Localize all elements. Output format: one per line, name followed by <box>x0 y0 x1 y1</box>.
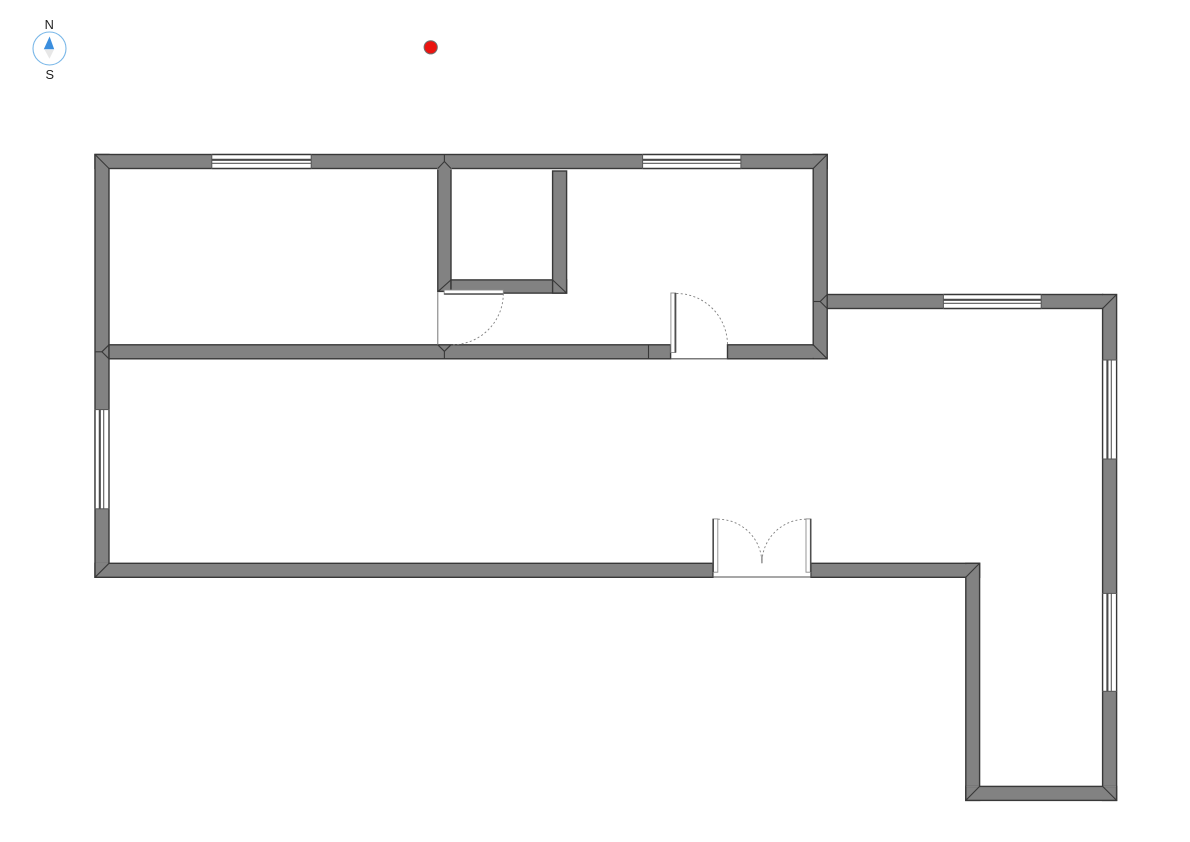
svg-text:S: S <box>46 67 55 82</box>
svg-text:N: N <box>45 17 54 32</box>
